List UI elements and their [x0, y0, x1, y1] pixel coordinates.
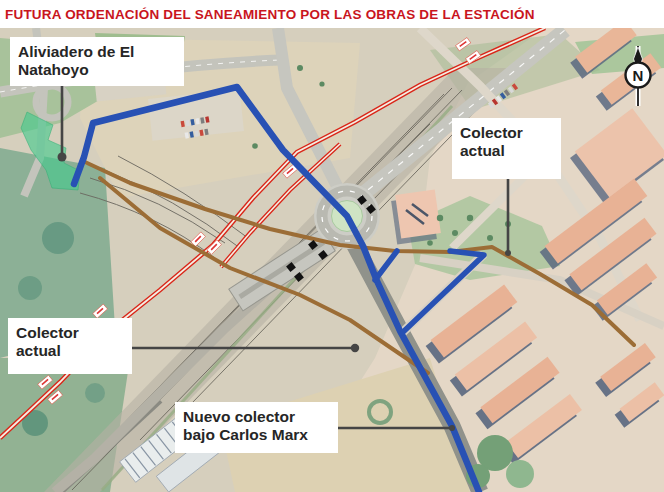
leader-dot-nuevo-colector: [449, 425, 455, 431]
label-colector-right-line2: actual: [460, 142, 553, 160]
label-nuevo-line1: Nuevo colector: [183, 408, 330, 426]
infographic-header: FUTURA ORDENACIÓN DEL SANEAMIENTO POR LA…: [0, 0, 664, 29]
page-title: FUTURA ORDENACIÓN DEL SANEAMIENTO POR LA…: [5, 7, 535, 22]
compass-north-label: N: [633, 67, 644, 84]
label-colector-actual-right: Colector actual: [452, 118, 561, 179]
label-aliviadero-line1: Aliviadero de El: [18, 43, 176, 61]
leader-dot-aliviadero: [58, 153, 67, 162]
label-colector-left-line1: Colector: [16, 324, 124, 342]
label-colector-actual-left: Colector actual: [8, 318, 132, 374]
label-aliviadero-line2: Natahoyo: [18, 61, 176, 79]
label-aliviadero-natahoyo: Aliviadero de El Natahoyo: [10, 37, 184, 86]
label-nuevo-colector: Nuevo colector bajo Carlos Marx: [175, 402, 338, 453]
label-colector-left-line2: actual: [16, 342, 124, 360]
label-colector-right-line1: Colector: [460, 124, 553, 142]
leader-dot-colector-right: [505, 250, 511, 256]
label-nuevo-line2: bajo Carlos Marx: [183, 426, 330, 444]
leader-dot-colector-left: [351, 344, 359, 352]
